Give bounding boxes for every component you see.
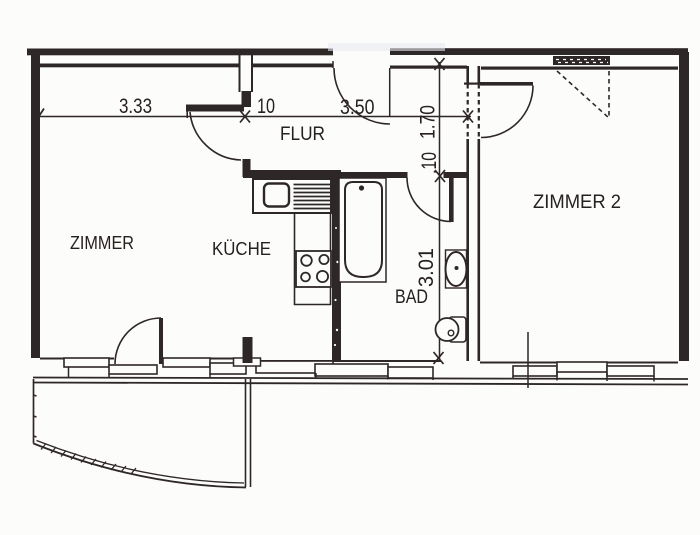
- svg-text:3.50: 3.50: [340, 96, 375, 119]
- svg-text:BAD: BAD: [395, 286, 428, 308]
- svg-text:1.70: 1.70: [417, 105, 440, 139]
- svg-text:KÜCHE: KÜCHE: [212, 239, 271, 259]
- svg-text:ZIMMER: ZIMMER: [70, 233, 134, 253]
- svg-text:10: 10: [257, 95, 275, 118]
- svg-text:3.01: 3.01: [415, 248, 438, 287]
- svg-text:FLUR: FLUR: [280, 123, 325, 145]
- svg-text:3.33: 3.33: [119, 95, 152, 118]
- svg-text:ZIMMER 2: ZIMMER 2: [533, 192, 621, 213]
- svg-text:.10: .10: [418, 152, 441, 174]
